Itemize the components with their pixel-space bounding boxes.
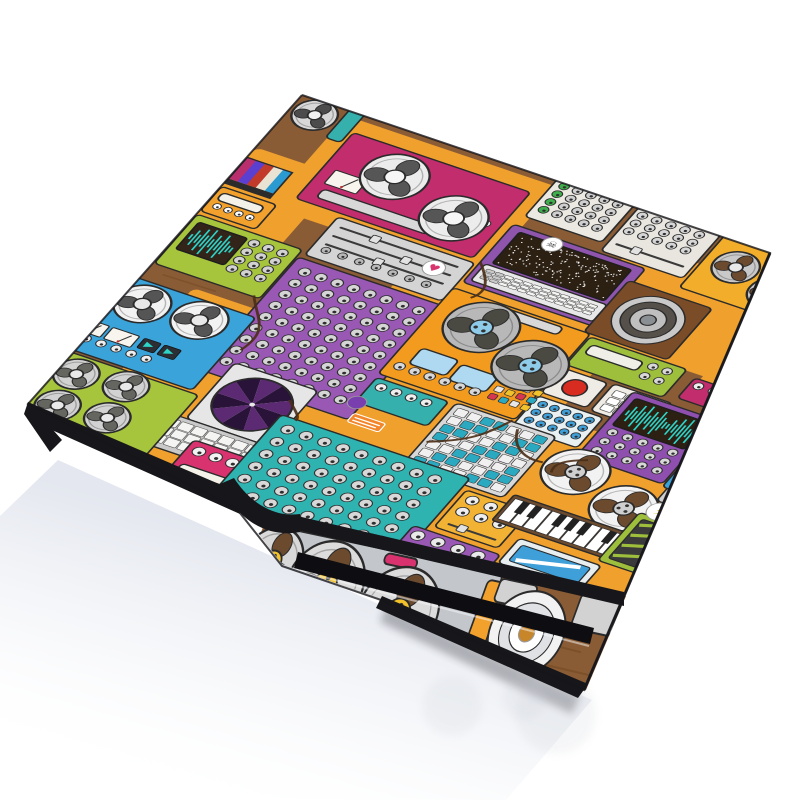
gray-disc [644, 534, 724, 584]
scene-svg: ♥☠⚡ [0, 0, 800, 800]
btn-strip-right [662, 518, 717, 565]
sticker-pink-tag [781, 425, 800, 444]
grille [719, 497, 749, 517]
blue-speaker-box-b [706, 490, 770, 528]
reflection-ghost-0 [422, 676, 482, 736]
grille [675, 471, 707, 491]
product-photo: ♥☠⚡ [0, 0, 800, 800]
